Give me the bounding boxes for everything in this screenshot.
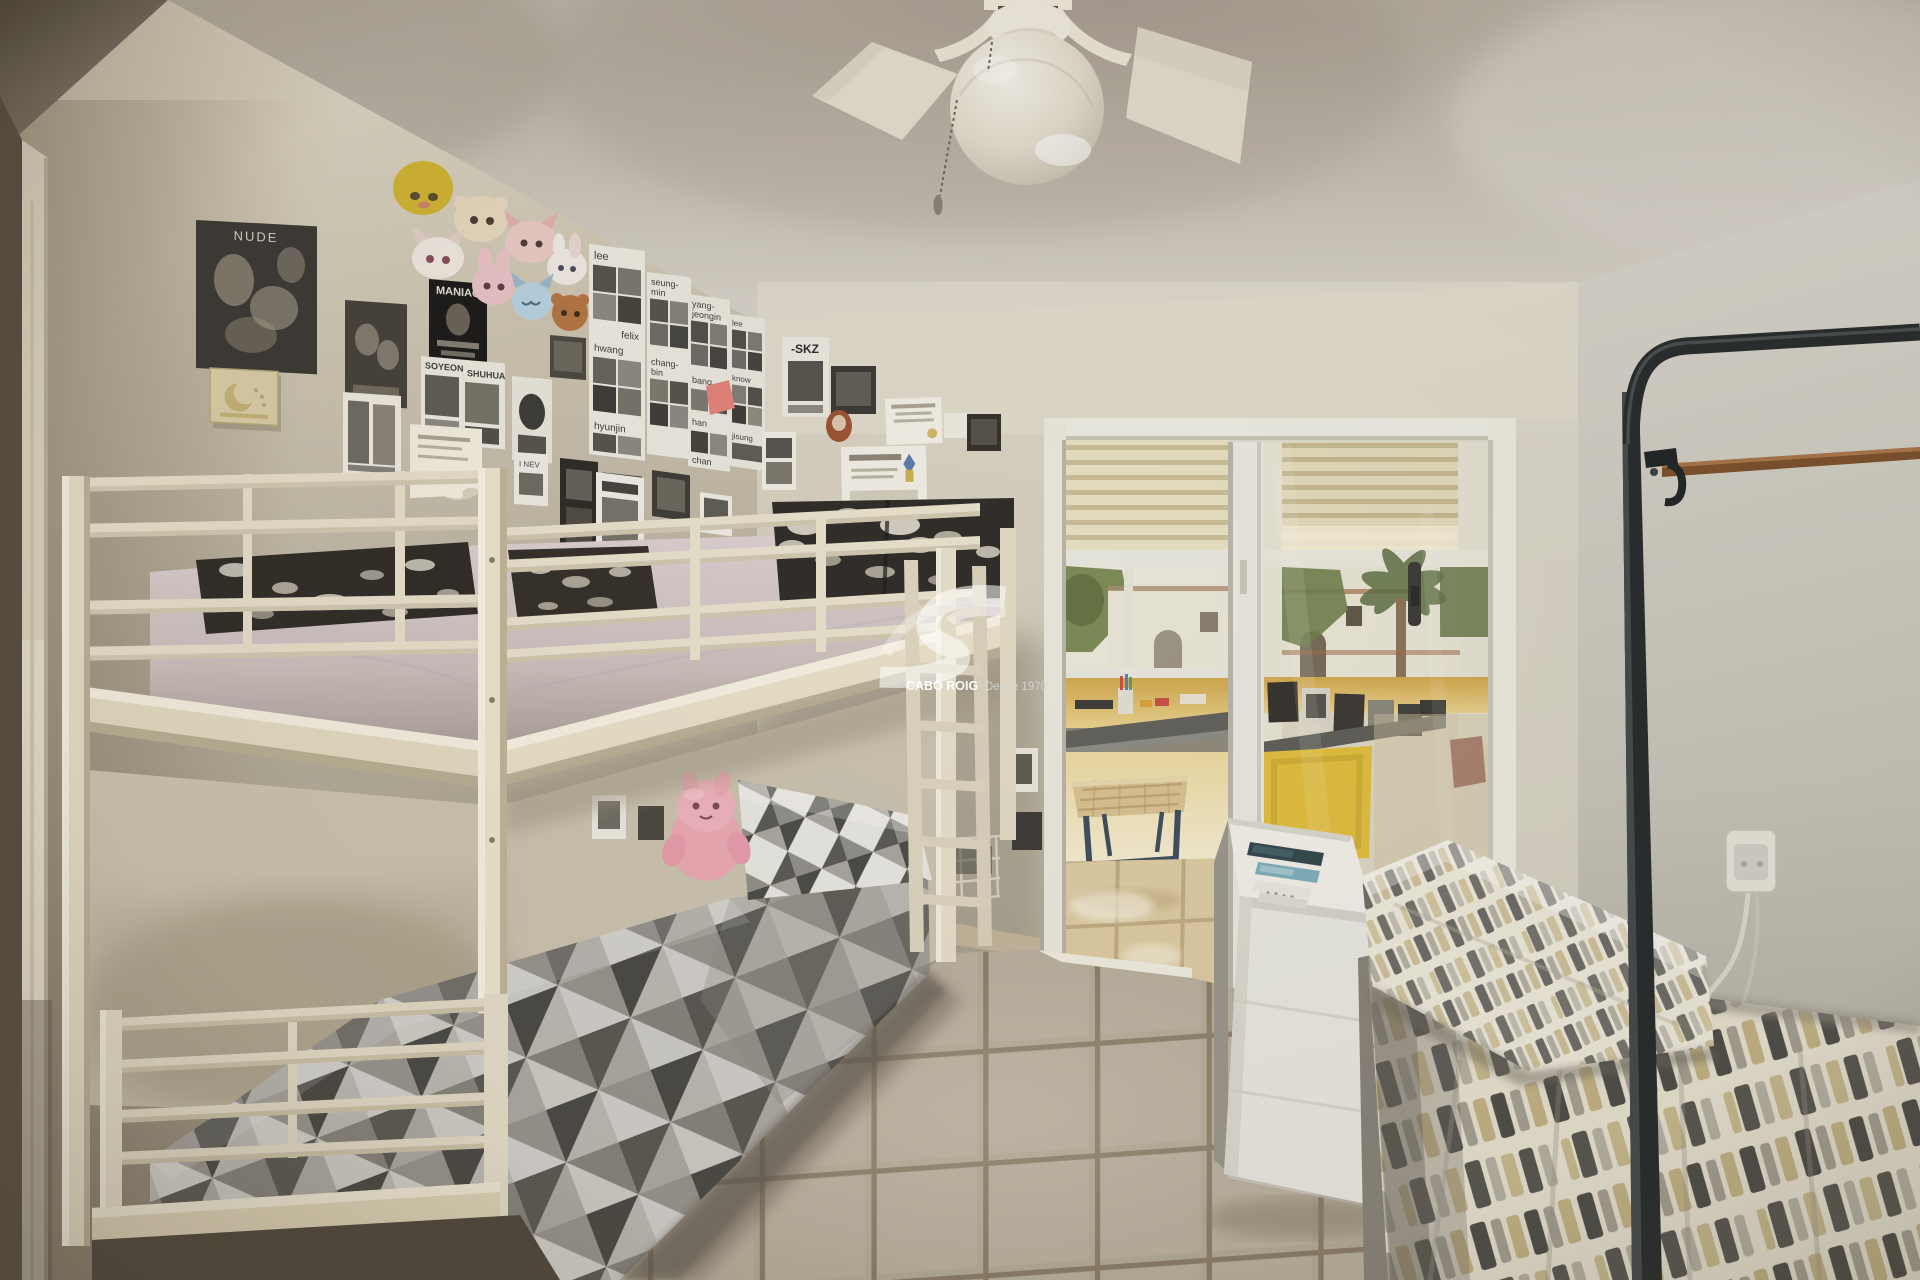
svg-text:Desde 1970: Desde 1970 [985,681,1047,693]
svg-text:CABO ROIG: CABO ROIG [906,679,978,693]
